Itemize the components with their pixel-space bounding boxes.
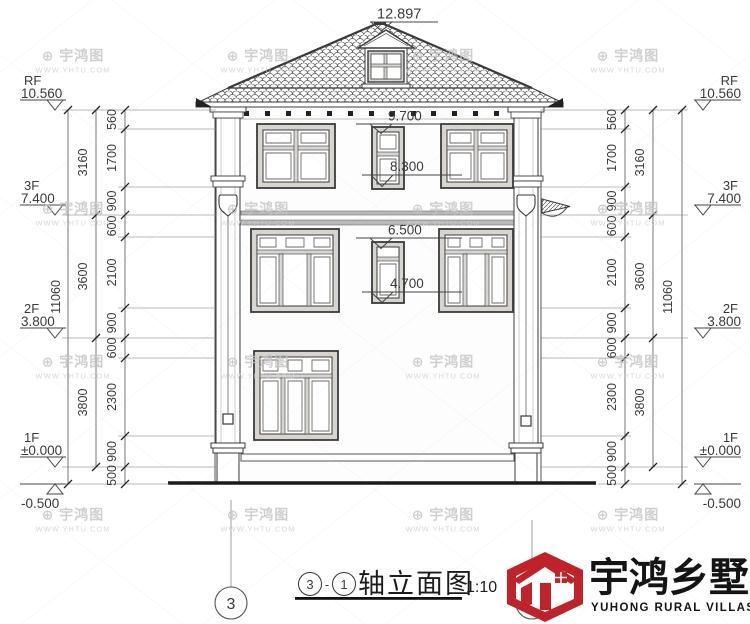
pilaster-capital-neck xyxy=(511,112,541,118)
level-value: 7.400 xyxy=(21,191,55,206)
window-2f-left xyxy=(251,229,339,312)
window-3f-left xyxy=(257,124,335,188)
window-mullion-left xyxy=(463,254,467,306)
pilaster-pedestal xyxy=(217,453,239,483)
level-triangles xyxy=(695,100,711,494)
window-glass xyxy=(260,357,332,434)
plinth-band xyxy=(241,454,514,461)
dim-text: 500 xyxy=(105,465,119,486)
axis-bubble-3-text: 3 xyxy=(227,596,236,613)
dim-text-total: 11060 xyxy=(49,280,63,314)
level-markers-right: RF 10.560 3F 7.400 2F 3.800 1F ±0.000 -0… xyxy=(694,73,741,511)
title-scale: 1:10 xyxy=(466,579,497,596)
downspout-outlet xyxy=(223,414,233,424)
pilaster-band xyxy=(211,176,245,181)
level-bars xyxy=(694,100,741,484)
level-value: 7.400 xyxy=(707,191,741,206)
pilaster-base xyxy=(211,443,245,448)
dim-text: 560 xyxy=(605,109,619,130)
pilaster-base xyxy=(509,443,543,448)
dim-text: 2100 xyxy=(105,259,119,287)
dim-text: 600 xyxy=(105,216,119,237)
belt-course-lower xyxy=(241,220,514,225)
pilaster-band xyxy=(509,176,543,181)
dim-text: 600 xyxy=(605,338,619,359)
window-1f-left xyxy=(254,351,338,440)
drawing-title: 3 - 1 轴立面图 1:10 xyxy=(295,569,497,600)
level-value: 10.560 xyxy=(21,86,62,101)
dim-text: 600 xyxy=(605,216,619,237)
dormer-sill xyxy=(362,84,410,88)
window-transom xyxy=(377,152,399,156)
window-mullion-left xyxy=(281,378,285,434)
window-2f-right xyxy=(439,229,513,312)
title-axis-dash: - xyxy=(325,577,329,592)
window-mullion xyxy=(294,130,298,182)
level-value: 3.800 xyxy=(707,314,741,329)
dim-text: 3160 xyxy=(633,149,647,177)
dim-text: 900 xyxy=(605,313,619,334)
logo: 宇鸿乡墅 YUHONG RURAL VILLAS xyxy=(500,546,750,624)
window-transom xyxy=(377,257,399,261)
pilaster-capital-neck xyxy=(213,112,243,118)
elevation-drawing: 560 1700 900 600 2100 900 600 2300 900 5… xyxy=(0,0,750,624)
pilaster-capital xyxy=(508,107,544,112)
title-underline xyxy=(295,597,462,600)
window-transom xyxy=(445,250,507,254)
window-mullion-right xyxy=(305,378,309,434)
window-glass xyxy=(445,235,507,306)
dimension-ticks xyxy=(621,106,686,488)
window-glass xyxy=(257,235,333,306)
mark-text: 9.700 xyxy=(388,109,422,124)
dim-text: 560 xyxy=(105,109,119,130)
title-text: 轴立面图 xyxy=(358,569,474,599)
level-value: -0.500 xyxy=(21,496,59,511)
level-value: 10.560 xyxy=(700,86,741,101)
window-mullion-left xyxy=(279,254,283,306)
dim-text: 900 xyxy=(605,191,619,212)
dim-text: 900 xyxy=(105,191,119,212)
window-mullion-right xyxy=(307,254,311,306)
pilaster-band-lower xyxy=(213,181,243,187)
level-value: ±0.000 xyxy=(700,443,741,458)
title-axis-to-text: 1 xyxy=(340,577,347,592)
dormer-transom xyxy=(371,64,401,67)
dimension-chain-right: 560 1700 900 600 2100 900 600 2300 900 5… xyxy=(540,106,688,488)
dim-text: 500 xyxy=(605,465,619,486)
dim-text: 3600 xyxy=(76,263,90,291)
window-2f-center xyxy=(372,242,404,303)
dim-text: 2300 xyxy=(605,383,619,411)
title-axis-from-text: 3 xyxy=(306,577,313,592)
window-mullion-right xyxy=(485,254,489,306)
dim-text: 900 xyxy=(605,441,619,462)
elevation-sheet: 560 1700 900 600 2100 900 600 2300 900 5… xyxy=(0,0,750,624)
pilaster-base-lower xyxy=(213,448,243,453)
window-3f-right xyxy=(441,124,513,188)
dim-text: 900 xyxy=(105,441,119,462)
dim-text: 2100 xyxy=(605,259,619,287)
level-value: ±0.000 xyxy=(21,443,62,458)
logo-name-zh: 宇鸿乡墅 xyxy=(589,556,749,600)
window-transom xyxy=(257,250,333,254)
scupper-spout xyxy=(542,199,570,213)
dim-text-total: 11060 xyxy=(661,280,675,314)
dim-text: 2300 xyxy=(105,383,119,411)
downspout-outlet xyxy=(521,416,531,426)
mark-text: 6.500 xyxy=(388,223,422,238)
pilaster-capital xyxy=(210,107,246,112)
window-mullion xyxy=(474,130,478,182)
dim-text: 1700 xyxy=(605,144,619,172)
pilaster-pedestal xyxy=(515,453,537,483)
dim-text: 900 xyxy=(105,313,119,334)
dimension-ticks xyxy=(64,106,129,488)
dim-text: 3600 xyxy=(633,263,647,291)
dim-text: 3800 xyxy=(76,389,90,417)
eave-fascia-band xyxy=(196,102,563,107)
mark-text: 8.300 xyxy=(390,159,424,174)
roof-eave-skirt xyxy=(199,87,561,102)
logo-name-en: YUHONG RURAL VILLAS xyxy=(591,602,750,614)
peak-elevation-text: 12.897 xyxy=(377,7,421,23)
level-value: -0.500 xyxy=(703,496,741,511)
dim-text: 600 xyxy=(105,338,119,359)
pilaster-base-lower xyxy=(511,448,541,453)
window-transom xyxy=(260,374,332,378)
belt-course-upper xyxy=(241,211,514,215)
axis-bubbles: 3 1 xyxy=(215,500,548,619)
mark-text: 4.700 xyxy=(390,276,424,291)
dim-text: 3160 xyxy=(76,149,90,177)
pilaster-band-lower xyxy=(511,181,541,187)
level-value: 3.800 xyxy=(21,314,55,329)
logo-door xyxy=(540,583,551,610)
dimension-chain-left: 560 1700 900 600 2100 900 600 2300 900 5… xyxy=(49,106,216,488)
dim-text: 1700 xyxy=(105,144,119,172)
dim-text: 3800 xyxy=(633,389,647,417)
